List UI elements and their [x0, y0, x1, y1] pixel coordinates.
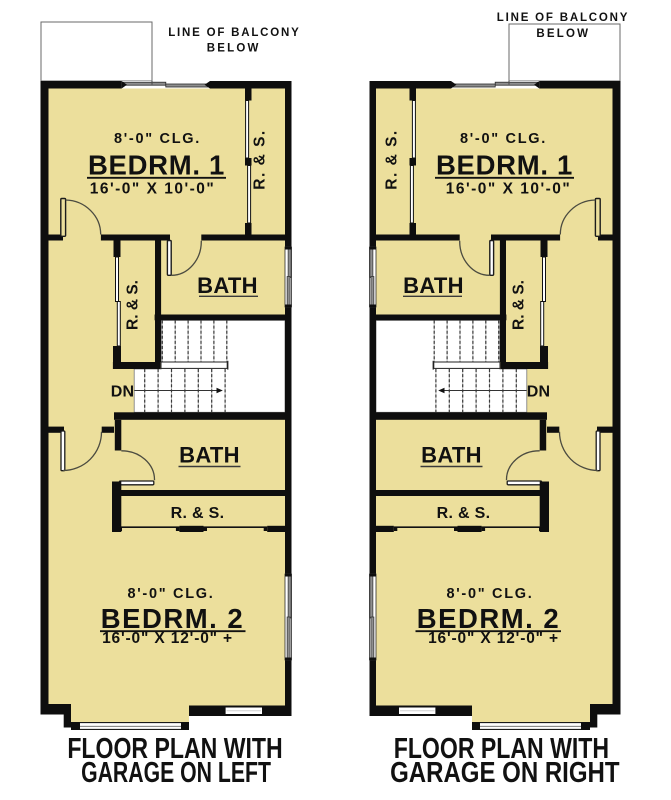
svg-text:BELOW: BELOW [207, 43, 261, 55]
svg-text:8'-0" CLG.: 8'-0" CLG. [447, 586, 534, 602]
svg-text:DN: DN [111, 384, 135, 401]
svg-text:R. & S.: R. & S. [125, 280, 142, 330]
svg-text:BELOW: BELOW [536, 28, 590, 40]
svg-text:16'-0" X 10'-0": 16'-0" X 10'-0" [90, 181, 216, 198]
svg-text:BATH: BATH [179, 443, 240, 468]
svg-text:BATH: BATH [403, 273, 464, 298]
svg-text:8'-0" CLG.: 8'-0" CLG. [128, 586, 215, 602]
svg-text:LINE OF BALCONY: LINE OF BALCONY [497, 12, 629, 24]
svg-text:R. & S.: R. & S. [252, 129, 269, 189]
svg-text:GARAGE ON LEFT: GARAGE ON LEFT [81, 757, 271, 789]
svg-text:16'-0" X 10'-0": 16'-0" X 10'-0" [446, 181, 572, 198]
svg-text:8'-0" CLG.: 8'-0" CLG. [460, 131, 547, 147]
svg-text:BATH: BATH [421, 443, 482, 468]
svg-text:8'-0" CLG.: 8'-0" CLG. [114, 131, 201, 147]
svg-text:R. & S.: R. & S. [171, 505, 225, 522]
svg-text:16'-0" X 12'-0" +: 16'-0" X 12'-0" + [102, 630, 233, 647]
svg-text:R. & S.: R. & S. [384, 129, 401, 189]
svg-text:DN: DN [527, 384, 551, 401]
svg-text:GARAGE ON RIGHT: GARAGE ON RIGHT [390, 756, 619, 788]
svg-text:BATH: BATH [197, 273, 258, 298]
svg-text:R. & S.: R. & S. [437, 505, 491, 522]
svg-text:R. & S.: R. & S. [511, 280, 528, 330]
svg-text:BEDRM. 1: BEDRM. 1 [88, 150, 225, 181]
svg-text:BEDRM. 1: BEDRM. 1 [436, 150, 573, 181]
svg-text:LINE OF BALCONY: LINE OF BALCONY [168, 27, 300, 39]
svg-text:16'-0" X 12'-0" +: 16'-0" X 12'-0" + [428, 630, 559, 647]
